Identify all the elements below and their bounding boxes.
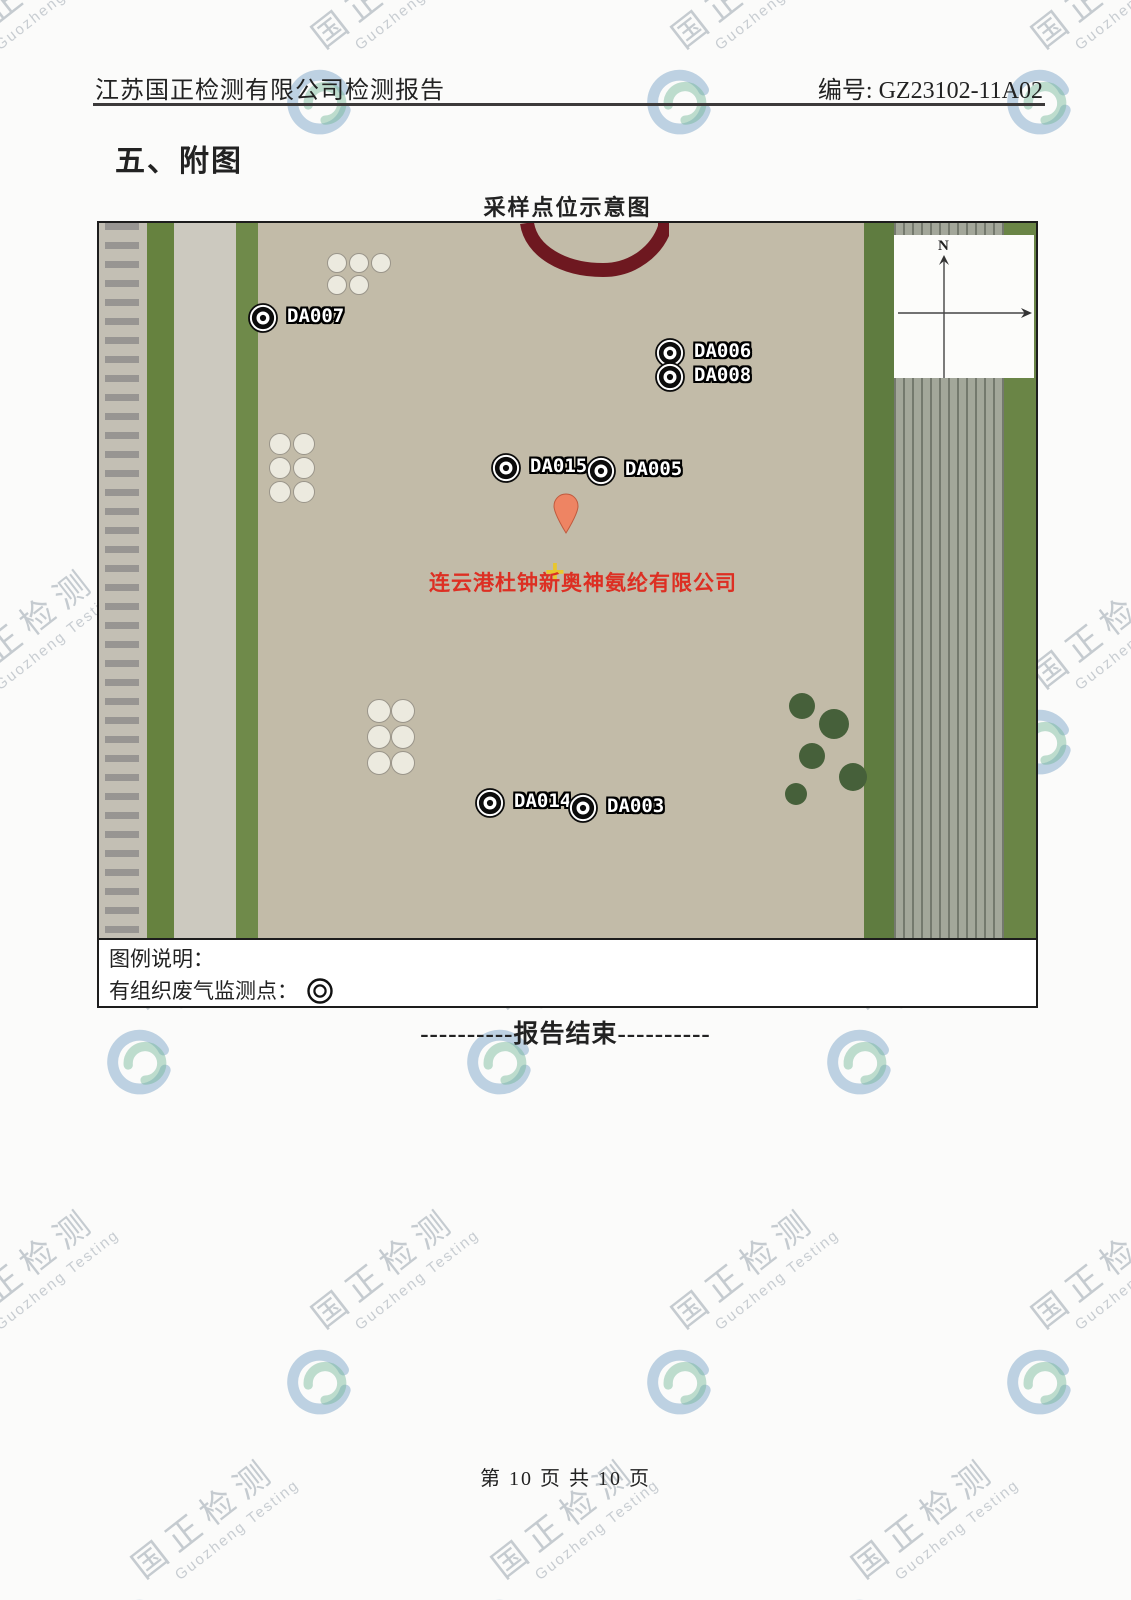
storage-tank xyxy=(269,433,291,455)
guozheng-swirl-logo-icon xyxy=(0,698,2,782)
legend-box: 图例说明： 有组织废气监测点： xyxy=(99,938,1036,1004)
tree-blob xyxy=(839,763,867,791)
monitoring-point-DA003: DA003 xyxy=(567,792,599,829)
bullseye-marker-icon xyxy=(585,455,617,487)
guozheng-swirl-logo-icon xyxy=(0,58,2,142)
storage-tank xyxy=(367,725,391,749)
marker-label: DA008 xyxy=(694,364,751,386)
storage-tank xyxy=(349,253,369,273)
marker-label: DA005 xyxy=(625,458,682,480)
tree-blob xyxy=(789,693,815,719)
watermark-cn-text: 国正检测 xyxy=(1020,1188,1131,1338)
storage-tank xyxy=(293,481,315,503)
map-scenery-block xyxy=(99,223,147,938)
watermark: 国正检测 Guozheng Testing xyxy=(280,1200,540,1440)
guozheng-swirl-logo-icon xyxy=(98,1588,182,1600)
bullseye-marker-icon xyxy=(474,787,506,819)
watermark-cn-text: 国正检测 xyxy=(300,0,473,58)
guozheng-swirl-logo-icon xyxy=(998,1338,1082,1422)
monitoring-point-DA008: DA008 xyxy=(654,361,686,398)
storage-tank xyxy=(367,751,391,775)
north-compass: N xyxy=(894,235,1034,378)
marker-label: DA015 xyxy=(530,455,587,477)
bullseye-marker-icon xyxy=(567,792,599,824)
storage-tank xyxy=(327,275,347,295)
legend-item-label: 有组织废气监测点： xyxy=(109,974,298,1008)
guozheng-swirl-logo-icon xyxy=(638,1338,722,1422)
legend-item: 有组织废气监测点： xyxy=(109,974,1026,1008)
storage-tank xyxy=(349,275,369,295)
watermark-en-text: Guozheng Testing xyxy=(892,1476,1023,1583)
monitoring-point-DA015: DA015 xyxy=(490,452,522,489)
watermark-en-text: Guozheng Testing xyxy=(0,1226,123,1333)
map-scenery-block xyxy=(174,223,236,938)
marker-label: DA007 xyxy=(287,305,344,327)
storage-tank xyxy=(371,253,391,273)
watermark-en-text: Guozheng Testing xyxy=(1072,1226,1131,1333)
storage-tank xyxy=(293,457,315,479)
bullseye-marker-icon xyxy=(247,302,279,334)
watermark: 国正检测 Guozheng Testing xyxy=(1000,1200,1131,1440)
storage-tank xyxy=(269,457,291,479)
header-divider xyxy=(93,103,1045,106)
storage-tank xyxy=(391,725,415,749)
marker-label: DA014 xyxy=(514,790,571,812)
compass-north-letter: N xyxy=(938,238,949,254)
monitoring-point-DA007: DA007 xyxy=(247,302,279,339)
storage-tank xyxy=(391,751,415,775)
location-pin-icon xyxy=(552,493,580,535)
tree-blob xyxy=(799,743,825,769)
watermark-cn-text: 国正检测 xyxy=(660,1188,833,1338)
watermark-cn-text: 国正检测 xyxy=(120,1438,293,1588)
watermark-cn-text: 国正检测 xyxy=(660,0,833,58)
storage-tank xyxy=(327,253,347,273)
storage-tank xyxy=(391,699,415,723)
marker-label: DA003 xyxy=(607,795,664,817)
watermark: 国正检测 Guozheng Testing xyxy=(640,1200,900,1440)
marker-label: DA006 xyxy=(694,340,751,362)
satellite-image: N + 连云港杜钟新奥神氨纶有限公司 DA007 DA006 DA008 xyxy=(99,223,1036,938)
watermark-en-text: Guozheng Testing xyxy=(1072,586,1131,693)
tree-blob xyxy=(785,783,807,805)
watermark-cn-text: 国正检测 xyxy=(0,548,112,698)
monitoring-point-DA005: DA005 xyxy=(585,455,617,492)
guozheng-swirl-logo-icon xyxy=(0,1338,2,1422)
company-name-label: 连云港杜钟新奥神氨纶有限公司 xyxy=(429,567,735,597)
watermark: 国正检测 Guozheng Testing xyxy=(0,1200,180,1440)
watermark-en-text: Guozheng Testing xyxy=(1072,0,1131,54)
watermark-cn-text: 国正检测 xyxy=(840,1438,1013,1588)
watermark-en-text: Guozheng Testing xyxy=(172,1476,303,1583)
storage-tank xyxy=(293,433,315,455)
watermark-en-text: Guozheng Testing xyxy=(352,0,483,54)
map-scenery-block xyxy=(864,223,894,938)
page-header: 江苏国正检测有限公司检测报告 编号: GZ23102-11A02 xyxy=(95,70,1043,105)
watermark-cn-text: 国正检测 xyxy=(480,1438,653,1588)
storage-tank xyxy=(367,699,391,723)
guozheng-swirl-logo-icon xyxy=(278,1338,362,1422)
watermark-cn-text: 国正检测 xyxy=(1020,0,1131,58)
map-scenery-block xyxy=(147,223,174,938)
watermark-en-text: Guozheng Testing xyxy=(352,1226,483,1333)
sampling-map: N + 连云港杜钟新奥神氨纶有限公司 DA007 DA006 DA008 xyxy=(97,221,1038,1008)
map-title: 采样点位示意图 xyxy=(97,190,1038,222)
watermark-cn-text: 国正检测 xyxy=(0,0,112,58)
watermark-en-text: Guozheng Testing xyxy=(712,1226,843,1333)
page-number: 第 10 页 共 10 页 xyxy=(0,1462,1131,1491)
report-number: 编号: GZ23102-11A02 xyxy=(818,70,1043,105)
red-curve-road xyxy=(517,223,669,277)
watermark-cn-text: 国正检测 xyxy=(0,1188,112,1338)
watermark-en-text: Guozheng Testing xyxy=(0,0,123,54)
bullseye-marker-icon xyxy=(490,452,522,484)
legend-title: 图例说明： xyxy=(109,944,1026,974)
report-end-text: ----------报告结束---------- xyxy=(0,1014,1131,1050)
bullseye-icon xyxy=(306,977,334,1005)
bullseye-marker-icon xyxy=(654,361,686,393)
storage-tank xyxy=(269,481,291,503)
watermark-cn-text: 国正检测 xyxy=(300,1188,473,1338)
tree-blob xyxy=(819,709,849,739)
watermark-en-text: Guozheng Testing xyxy=(712,0,843,54)
report-header-title: 江苏国正检测有限公司检测报告 xyxy=(95,70,445,105)
monitoring-point-DA014: DA014 xyxy=(474,787,506,824)
section-title: 五、附图 xyxy=(115,136,243,180)
watermark-en-text: Guozheng Testing xyxy=(532,1476,663,1583)
guozheng-swirl-logo-icon xyxy=(458,1588,542,1600)
guozheng-swirl-logo-icon xyxy=(818,1588,902,1600)
